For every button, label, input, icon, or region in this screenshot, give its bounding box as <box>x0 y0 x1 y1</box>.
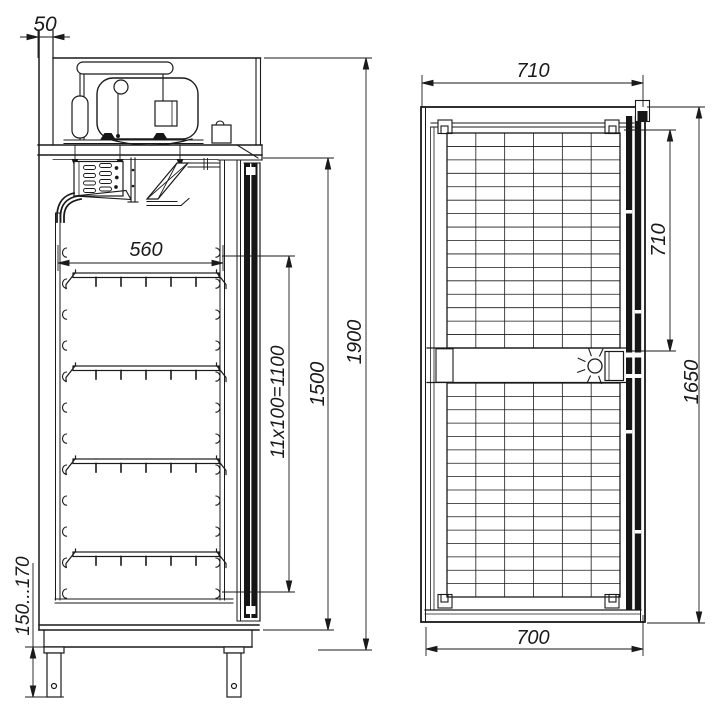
wire-shelf <box>66 456 226 475</box>
door-hinge-strips <box>626 101 650 611</box>
label-shelf-width: 560 <box>129 239 162 261</box>
label-interior-height: 1500 <box>307 362 329 407</box>
legs <box>44 647 244 697</box>
label-bottom-width: 700 <box>516 627 549 649</box>
refrigerant-tubes <box>57 193 81 222</box>
compressor-body <box>97 78 198 139</box>
deck-panel <box>38 145 262 168</box>
inner-liner <box>55 160 233 603</box>
wire-shelf <box>66 549 226 568</box>
label-shelf-pitch: 11x100=1100 <box>268 345 289 458</box>
front-view <box>421 101 650 623</box>
wire-shelf <box>66 270 226 289</box>
leg <box>227 653 241 697</box>
tube-loop <box>114 80 128 94</box>
leg <box>47 653 61 697</box>
discharge-tube <box>77 62 173 74</box>
receiver-cylinder <box>72 96 88 138</box>
label-overall-height: 1900 <box>344 320 366 365</box>
starter-box <box>212 125 231 143</box>
evaporator-assembly <box>57 158 220 222</box>
label-leg-height: 150...170 <box>13 556 34 636</box>
shelf-rail-hooks <box>62 248 220 598</box>
wire-shelves <box>66 270 226 568</box>
label-rear-clearance: 50 <box>33 13 57 36</box>
side-section-view <box>38 31 262 697</box>
cabinet-base <box>39 625 259 647</box>
label-body-height: 1650 <box>681 360 703 405</box>
terminal-box <box>155 101 177 126</box>
label-front-width: 710 <box>516 60 549 82</box>
interior-lamp-icon <box>588 359 602 373</box>
lamp-housing <box>605 352 624 381</box>
leg-flange <box>224 647 244 653</box>
divider-tab <box>436 349 453 382</box>
label-door-height: 710 <box>648 223 670 256</box>
compressor-unit <box>64 62 231 145</box>
wire-shelf <box>66 363 226 382</box>
deck-brace <box>237 145 258 158</box>
drawing-page: 50 560 11x100=1100 1500 1900 150...170 7… <box>0 0 713 713</box>
divider-band <box>427 348 627 383</box>
leg-flange <box>44 647 64 653</box>
technical-drawing: 50 560 11x100=1100 1500 1900 150...170 7… <box>0 0 713 713</box>
door-section <box>237 160 260 621</box>
